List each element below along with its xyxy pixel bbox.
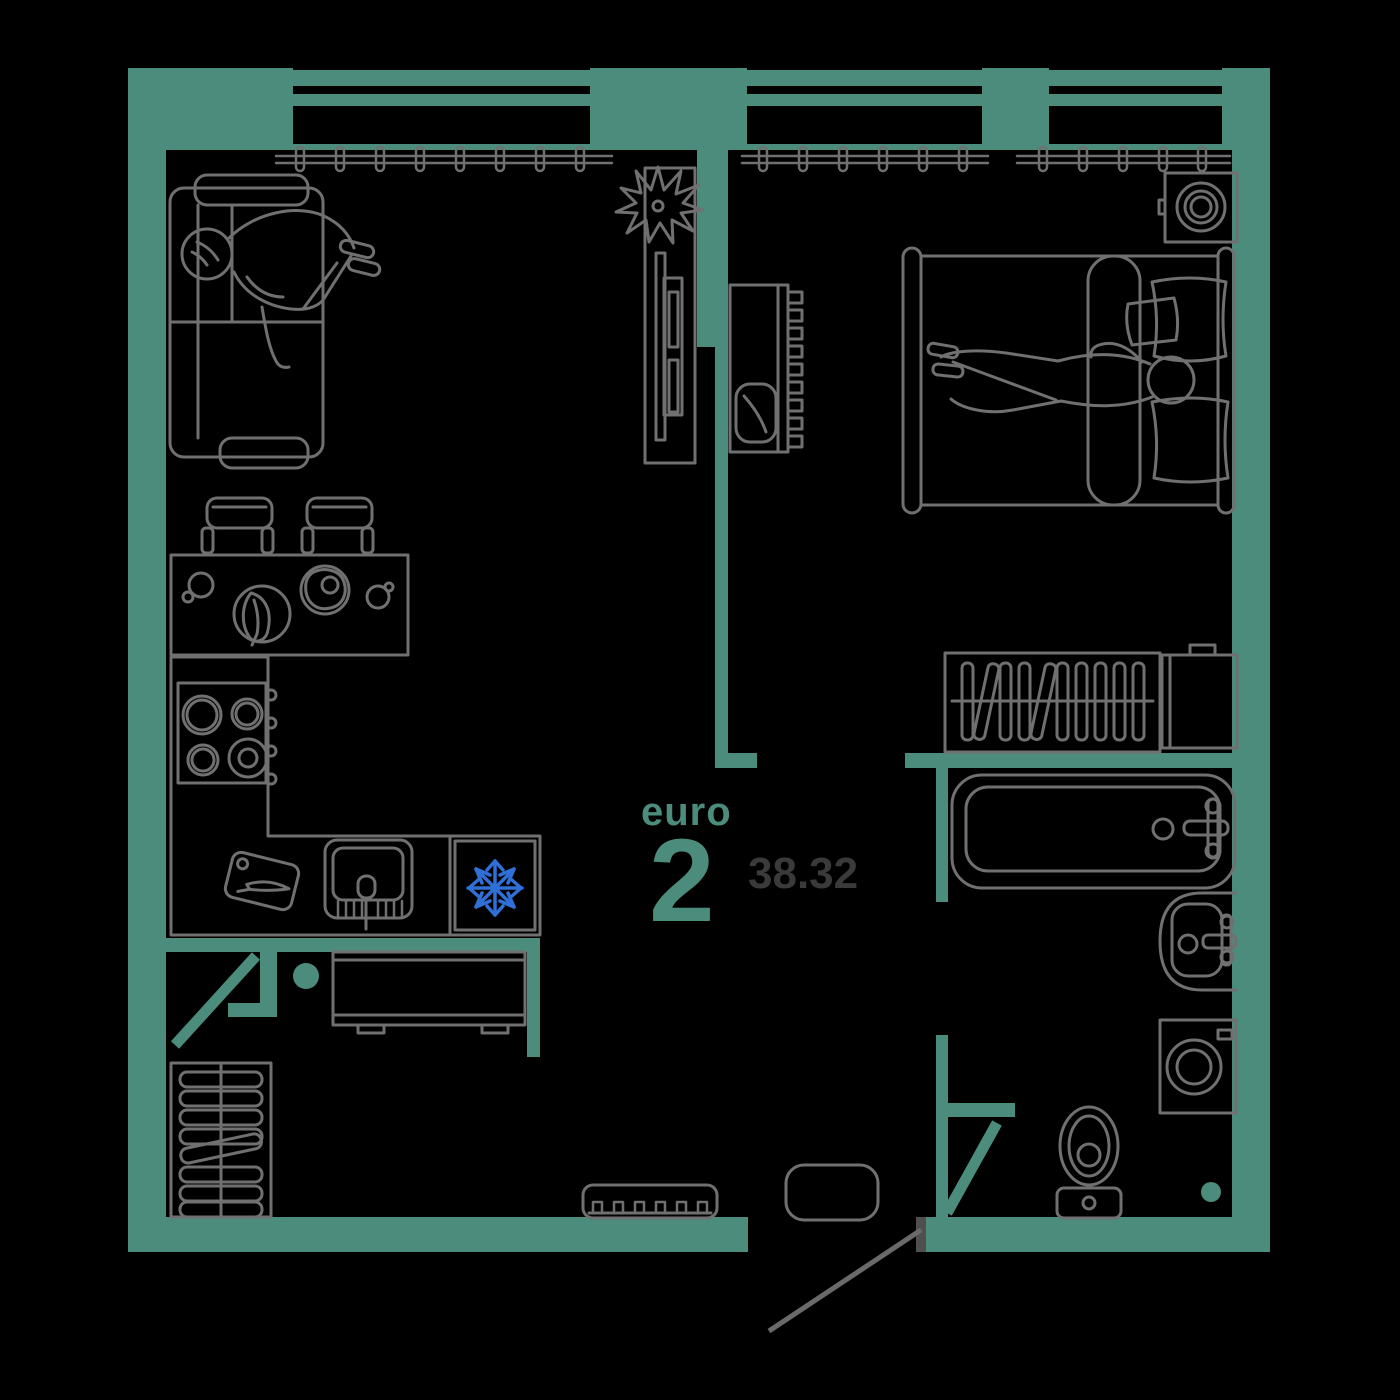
floorplan-drawing: [0, 0, 1400, 1400]
plan-rooms-number: 2: [649, 822, 715, 940]
washing-machine-icon: [1160, 1020, 1236, 1113]
window-icon: [293, 70, 590, 86]
wardrobe-hangers-icon: [945, 653, 1160, 752]
radiator-icon: [171, 1063, 271, 1217]
door-swing-icon: [769, 1230, 921, 1331]
curtain-rails: [276, 147, 1230, 171]
doors: [175, 956, 997, 1331]
window-icon: [1049, 70, 1222, 86]
chair-icon: [202, 498, 273, 553]
fridge-snowflake-icon: [455, 841, 535, 930]
plan-area-value: 38.32: [748, 852, 858, 896]
doormat-icon: [583, 1185, 717, 1218]
stool-icon: [736, 384, 776, 442]
washbasin-icon: [1160, 893, 1236, 990]
window-icon: [747, 70, 982, 86]
walls: [128, 68, 1270, 1252]
dining-table-icon: [171, 555, 408, 655]
kitchen-sink-icon: [325, 840, 412, 929]
curtain-rail-icon: [1017, 147, 1230, 171]
chair-icon: [302, 498, 373, 553]
curtain-rail-icon: [276, 147, 612, 171]
floor-dot: [1201, 1182, 1221, 1202]
pillow-icon: [1152, 278, 1226, 361]
console-table-icon: [333, 952, 525, 1033]
floorplan-canvas: euro 2 38.32: [0, 0, 1400, 1400]
windows: [293, 70, 1222, 150]
stove-icon: [178, 683, 276, 784]
door-swing-icon: [947, 1123, 997, 1213]
pillow-icon: [1127, 298, 1178, 345]
bed-icon: [903, 248, 1234, 513]
plant-icon: [616, 167, 703, 243]
person-on-sofa-icon: [182, 211, 381, 368]
dressing-table-icon: [730, 285, 802, 452]
pouf-icon: [786, 1165, 878, 1220]
sofa-icon: [170, 175, 323, 468]
toilet-icon: [1057, 1107, 1121, 1218]
floor-dot: [293, 963, 319, 989]
round-sink-icon: [1159, 173, 1237, 242]
curtain-rail-icon: [742, 147, 988, 171]
door-swing-icon: [175, 956, 256, 1045]
cutting-board-icon: [223, 850, 300, 911]
cabinet-icon: [1162, 645, 1237, 748]
bathtub-icon: [952, 775, 1235, 888]
